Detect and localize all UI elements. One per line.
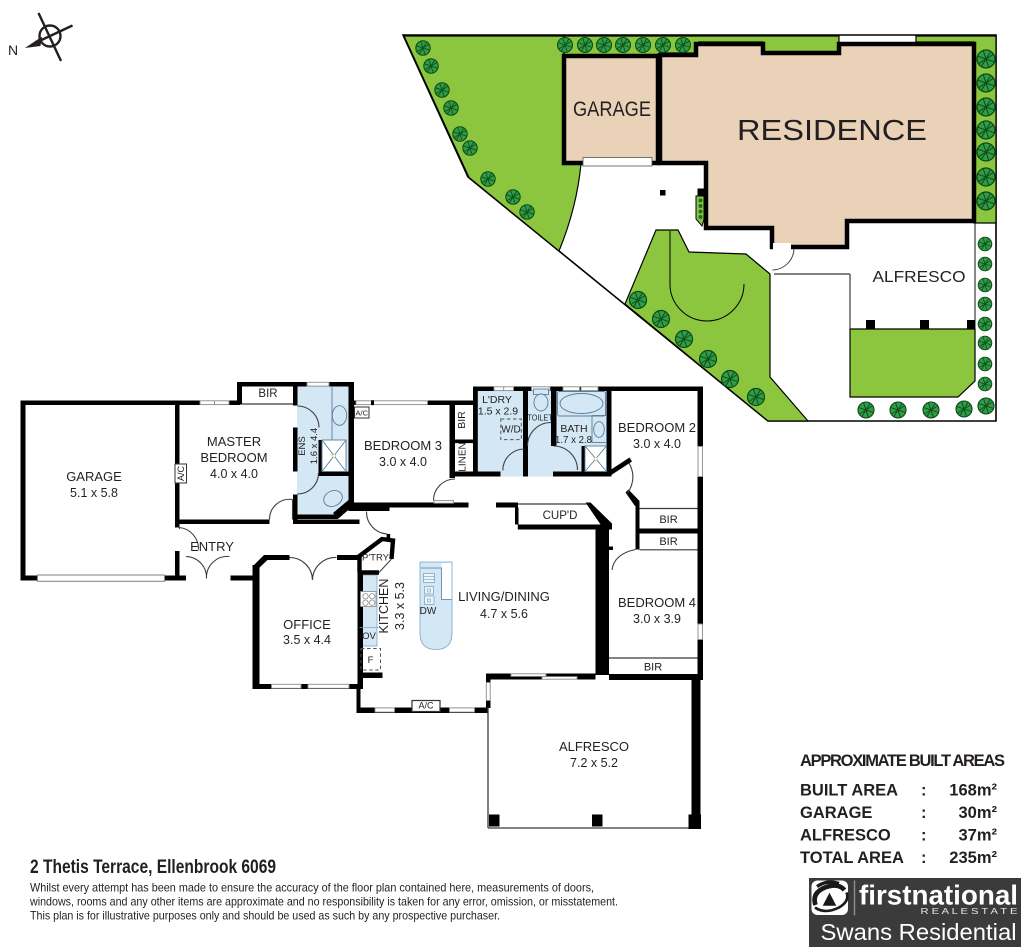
svg-text:OFFICE: OFFICE [283, 617, 331, 632]
svg-text::: : [921, 827, 927, 845]
svg-text:TOTAL AREA: TOTAL AREA [800, 849, 904, 867]
svg-text:1.5 x 2.9: 1.5 x 2.9 [478, 406, 518, 418]
svg-text:BEDROOM: BEDROOM [200, 450, 267, 465]
svg-text:A/C: A/C [176, 466, 186, 482]
svg-text:2 Thetis Terrace, Ellenbrook 6: 2 Thetis Terrace, Ellenbrook 6069 [30, 856, 276, 878]
svg-text:windows, rooms and any other i: windows, rooms and any other items are a… [29, 895, 618, 909]
svg-text:A/C: A/C [418, 701, 434, 711]
svg-text:P'TRY: P'TRY [362, 553, 390, 564]
svg-text::: : [921, 804, 927, 822]
svg-text:4.0 x 4.0: 4.0 x 4.0 [210, 467, 258, 481]
svg-text:GARAGE: GARAGE [66, 469, 122, 484]
svg-text:BIR: BIR [644, 662, 662, 674]
svg-text:KITCHEN: KITCHEN [377, 579, 391, 634]
svg-text:30m²: 30m² [958, 804, 997, 822]
svg-text:5.1 x 5.8: 5.1 x 5.8 [70, 486, 118, 500]
svg-text:APPROXIMATE BUILT AREAS: APPROXIMATE BUILT AREAS [800, 752, 1005, 770]
svg-text:This plan is for illustrative: This plan is for illustrative purposes o… [30, 909, 500, 923]
svg-text:L'DRY: L'DRY [482, 394, 512, 406]
svg-text:W/D: W/D [501, 425, 520, 436]
svg-text:DW: DW [420, 606, 437, 617]
svg-text:BIR: BIR [456, 411, 468, 429]
svg-text:GARAGE: GARAGE [800, 804, 872, 822]
svg-text:BEDROOM 4: BEDROOM 4 [618, 595, 696, 610]
svg-text:3.3 x 5.3: 3.3 x 5.3 [393, 582, 407, 630]
svg-text:F: F [368, 655, 374, 666]
svg-text:4.7 x 5.6: 4.7 x 5.6 [480, 607, 528, 621]
svg-text:Whilst every attempt has been: Whilst every attempt has been made to en… [30, 881, 594, 895]
svg-text::: : [921, 782, 927, 800]
svg-text:ALFRESCO: ALFRESCO [559, 739, 629, 754]
svg-text:RESIDENCE: RESIDENCE [737, 115, 927, 147]
svg-text:Swans Residential: Swans Residential [821, 919, 1017, 945]
svg-text:BIR: BIR [659, 514, 677, 526]
svg-text:168m²: 168m² [949, 782, 997, 800]
svg-text:ALFRESCO: ALFRESCO [873, 269, 966, 286]
svg-text:BIR: BIR [659, 536, 677, 548]
svg-text:7.2 x 5.2: 7.2 x 5.2 [570, 756, 618, 770]
svg-text:3.0 x 4.0: 3.0 x 4.0 [633, 437, 681, 451]
svg-text:TOILET: TOILET [528, 413, 553, 423]
svg-text:ALFRESCO: ALFRESCO [800, 827, 891, 845]
svg-text:3.0 x 4.0: 3.0 x 4.0 [379, 455, 427, 469]
svg-text:BIR: BIR [258, 388, 277, 400]
svg-text:BUILT AREA: BUILT AREA [800, 782, 898, 800]
svg-text:BATH: BATH [560, 423, 587, 435]
svg-text:R E A L E S T A T E: R E A L E S T A T E [921, 907, 1018, 916]
svg-text:CUP'D: CUP'D [543, 510, 578, 522]
svg-text:BEDROOM 3: BEDROOM 3 [364, 438, 442, 453]
svg-text:BEDROOM 2: BEDROOM 2 [618, 420, 696, 435]
svg-text:MASTER: MASTER [207, 434, 261, 449]
svg-text:235m²: 235m² [949, 849, 997, 867]
svg-text:firstnational: firstnational [859, 880, 1018, 911]
svg-text::: : [921, 849, 927, 867]
svg-text:3.0 x 3.9: 3.0 x 3.9 [633, 612, 681, 626]
svg-text:A/C: A/C [356, 409, 369, 418]
svg-text:37m²: 37m² [958, 827, 997, 845]
svg-text:1.7 x 2.8: 1.7 x 2.8 [555, 435, 592, 446]
svg-text:ENTRY: ENTRY [190, 539, 234, 554]
svg-text:3.5 x 4.4: 3.5 x 4.4 [283, 633, 331, 647]
svg-text:GARAGE: GARAGE [573, 98, 651, 121]
svg-text:LINEN: LINEN [458, 442, 469, 471]
svg-text:OV: OV [362, 631, 376, 642]
svg-text:1.6 x 4.4: 1.6 x 4.4 [309, 428, 320, 464]
svg-text:ENS: ENS [297, 436, 308, 456]
svg-text:LIVING/DINING: LIVING/DINING [458, 589, 550, 604]
svg-text:N: N [8, 42, 18, 58]
